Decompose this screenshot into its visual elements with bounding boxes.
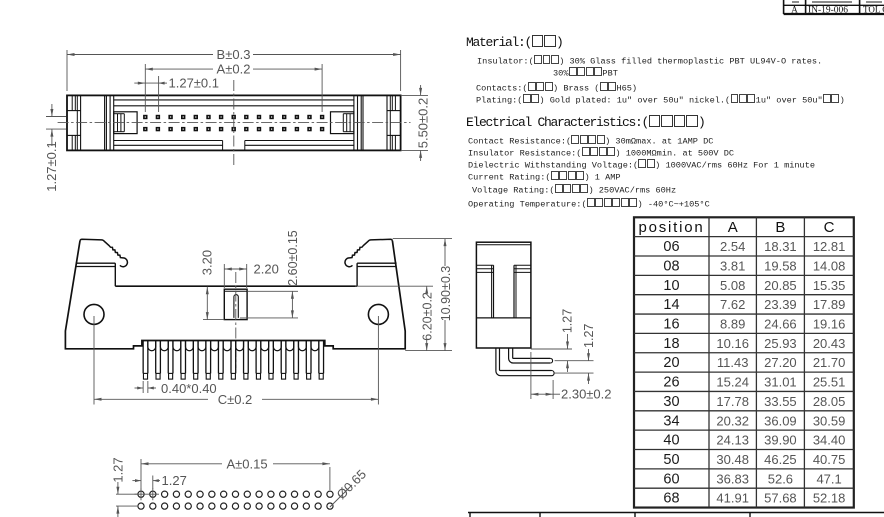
svg-text:40: 40 — [663, 433, 679, 449]
svg-text:23.39: 23.39 — [764, 297, 797, 312]
svg-text:1.27: 1.27 — [110, 457, 125, 482]
svg-text:12.81: 12.81 — [813, 239, 846, 254]
svg-text:30: 30 — [663, 394, 679, 410]
svg-text:39.90: 39.90 — [764, 433, 797, 448]
svg-text:2.20: 2.20 — [254, 261, 279, 276]
svg-text:06: 06 — [663, 239, 679, 255]
svg-text:30.59: 30.59 — [813, 413, 846, 428]
svg-text:25.51: 25.51 — [813, 375, 846, 390]
svg-text:TOL C: TOL C — [863, 4, 884, 14]
svg-text:position: position — [638, 219, 704, 236]
svg-text:IN-19-006: IN-19-006 — [808, 6, 848, 16]
svg-text:20.43: 20.43 — [813, 336, 846, 351]
svg-text:7.62: 7.62 — [720, 297, 745, 312]
svg-text:52.18: 52.18 — [813, 491, 846, 506]
svg-text:60: 60 — [663, 471, 679, 487]
svg-text:21.70: 21.70 — [813, 355, 846, 370]
svg-text:57.68: 57.68 — [764, 491, 797, 506]
svg-text:40.75: 40.75 — [813, 452, 846, 467]
svg-text:36.83: 36.83 — [716, 471, 749, 486]
svg-text:A±0.15: A±0.15 — [226, 456, 267, 471]
svg-text:41.91: 41.91 — [716, 491, 749, 506]
svg-text:34.40: 34.40 — [813, 433, 846, 448]
svg-text:52.6: 52.6 — [768, 471, 793, 486]
svg-text:18: 18 — [663, 336, 679, 352]
svg-text:3.81: 3.81 — [720, 259, 745, 274]
svg-text:1.27±0.1: 1.27±0.1 — [44, 141, 59, 192]
svg-text:16: 16 — [663, 317, 679, 333]
svg-text:30.48: 30.48 — [716, 452, 749, 467]
svg-text:46.25: 46.25 — [764, 452, 797, 467]
svg-text:11.43: 11.43 — [717, 355, 749, 370]
svg-text:26: 26 — [663, 375, 679, 391]
svg-text:36.09: 36.09 — [764, 413, 797, 428]
svg-text:6.20±0.2: 6.20±0.2 — [420, 292, 434, 341]
svg-text:A: A — [728, 219, 738, 236]
svg-text:C±0.2: C±0.2 — [218, 392, 253, 407]
svg-text:2.30±0.2: 2.30±0.2 — [561, 387, 612, 402]
svg-text:2.54: 2.54 — [720, 239, 745, 254]
svg-text:15.24: 15.24 — [716, 375, 749, 390]
svg-text:1.27: 1.27 — [561, 309, 575, 333]
svg-text:14.08: 14.08 — [813, 259, 846, 274]
svg-text:17.78: 17.78 — [716, 394, 749, 409]
svg-text:25.93: 25.93 — [764, 336, 797, 351]
svg-text:28.05: 28.05 — [813, 394, 846, 409]
svg-text:19.16: 19.16 — [813, 317, 846, 332]
svg-text:08: 08 — [663, 259, 679, 275]
svg-text:18.31: 18.31 — [764, 239, 797, 254]
svg-text:33.55: 33.55 — [764, 394, 797, 409]
svg-text:27.20: 27.20 — [764, 355, 797, 370]
svg-text:19.58: 19.58 — [764, 259, 797, 274]
svg-text:14: 14 — [663, 297, 679, 313]
svg-text:Ø0.65: Ø0.65 — [333, 466, 369, 502]
svg-text:5.08: 5.08 — [720, 278, 745, 293]
svg-text:20.32: 20.32 — [716, 413, 749, 428]
svg-text:24.66: 24.66 — [764, 317, 797, 332]
svg-text:A: A — [791, 4, 798, 14]
svg-text:50: 50 — [663, 452, 679, 468]
svg-text:17.89: 17.89 — [813, 297, 846, 312]
svg-text:1.27±0.1: 1.27±0.1 — [169, 76, 220, 91]
svg-text:1.27: 1.27 — [582, 324, 596, 348]
svg-text:B: B — [775, 219, 785, 236]
svg-text:31.01: 31.01 — [764, 375, 797, 390]
svg-text:47.1: 47.1 — [816, 471, 841, 486]
svg-text:2.60±0.15: 2.60±0.15 — [286, 230, 300, 286]
svg-text:0.40*0.40: 0.40*0.40 — [161, 381, 217, 396]
svg-text:10: 10 — [663, 278, 679, 294]
svg-text:C: C — [824, 219, 835, 236]
svg-text:20.85: 20.85 — [764, 278, 797, 293]
svg-text:34: 34 — [663, 413, 679, 429]
svg-text:68: 68 — [663, 491, 679, 507]
svg-text:1.27: 1.27 — [162, 473, 187, 488]
svg-text:24.13: 24.13 — [716, 433, 749, 448]
svg-text:A±0.2: A±0.2 — [217, 62, 251, 77]
svg-text:15.35: 15.35 — [813, 278, 846, 293]
svg-text:3.20: 3.20 — [200, 250, 215, 275]
svg-text:5.50±0.2: 5.50±0.2 — [415, 98, 430, 149]
svg-text:10.16: 10.16 — [716, 336, 749, 351]
svg-text:B±0.3: B±0.3 — [217, 47, 251, 62]
svg-text:20: 20 — [663, 355, 679, 371]
svg-text:10.90±0.3: 10.90±0.3 — [439, 266, 453, 322]
svg-text:8.89: 8.89 — [720, 317, 745, 332]
